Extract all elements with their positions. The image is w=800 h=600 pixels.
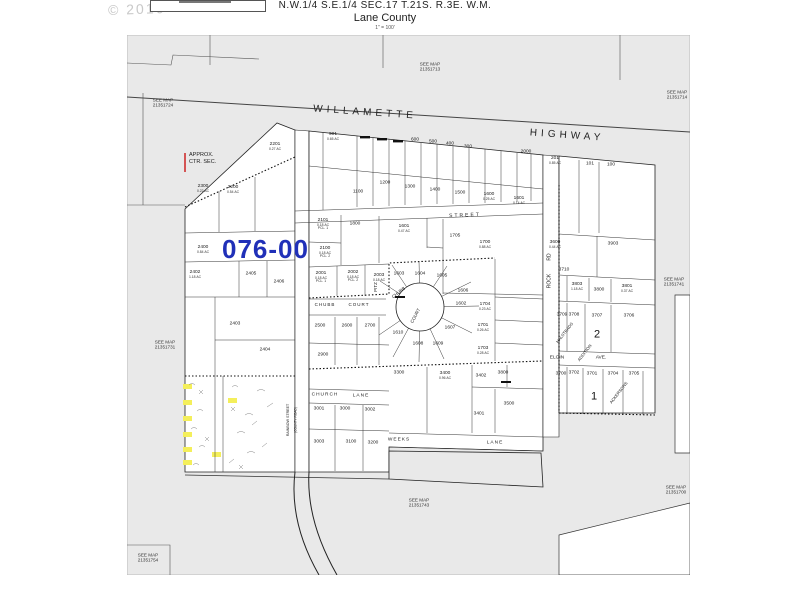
parcel-label: 17010.26 AC xyxy=(477,324,489,332)
see-map-ref: SEE MAP21351714 xyxy=(667,90,687,101)
parcel-label: 3700 xyxy=(556,373,567,378)
see-map-ref: SEE MAP21351724 xyxy=(153,98,173,109)
street-label: AVE. xyxy=(596,357,607,362)
parcel-label: 2600 xyxy=(342,325,353,330)
street-label: COURT xyxy=(410,308,421,324)
parcel-label: 1609 xyxy=(433,343,444,348)
parcel-label: 1300 xyxy=(405,186,416,191)
parcel-label: 23000.22 AC xyxy=(197,185,209,193)
street-label: RD xyxy=(548,253,553,260)
parcel-label: 1604 xyxy=(415,273,426,278)
parcel-label: 17030.28 AC xyxy=(477,347,489,355)
parcel-label: 3709 xyxy=(557,314,568,319)
parcel-label: 2405 xyxy=(246,273,257,278)
parcel-label: 2406 xyxy=(274,281,285,286)
district-code: 076-00 xyxy=(222,236,309,262)
parcel-label: 2404 xyxy=(260,349,271,354)
parcel-label: 34000.96 AC xyxy=(439,372,451,380)
parcel-label: 17000.88 AC xyxy=(479,241,491,249)
map-header: N.W.1/4 S.E.1/4 SEC.17 T.21S. R.3E. W.M.… xyxy=(0,0,770,31)
street-label: LANE xyxy=(487,442,504,447)
parcel-label: 500 xyxy=(429,141,437,146)
street-label: ADDITION xyxy=(577,344,593,362)
street-label: WILLAMETTE xyxy=(313,104,417,121)
parcel-label: 3710 xyxy=(559,269,570,274)
parcel-label: 3704 xyxy=(608,373,619,378)
parcel-label: 38010.37 AC xyxy=(621,285,633,293)
parcel-label: 1605 xyxy=(437,275,448,280)
parcel-label: 9010.65 AC xyxy=(327,133,339,141)
parcel-label: 3705 xyxy=(629,373,640,378)
parcel-label: 2010.85 AC xyxy=(549,157,561,165)
parcel-label: 3402 xyxy=(476,375,487,380)
parcel-label: 22000.54 AC xyxy=(227,186,239,194)
parcel-label: 3800 xyxy=(498,372,509,377)
see-map-ref: SEE MAP21351743 xyxy=(409,498,429,509)
street-label: (COUNTY ROAD) xyxy=(294,407,297,433)
street-label: CHUBB xyxy=(391,286,406,299)
street-label: CHUBB xyxy=(315,303,336,308)
parcel-label: 1610 xyxy=(393,332,404,337)
parcel-label: 16010.14 AC xyxy=(513,197,525,205)
parcel-label: 3200 xyxy=(368,442,379,447)
see-map-ref: SEE MAP21351754 xyxy=(138,553,158,564)
parcel-label: 1500 xyxy=(455,192,466,197)
parcel-label: 16000.25 AC xyxy=(483,193,495,201)
parcel-label: 16010.47 AC xyxy=(398,225,410,233)
see-map-ref: SEE MAP21351741 xyxy=(664,277,684,288)
parcel-label: 1200 xyxy=(380,182,391,187)
parcel-label: 1603 xyxy=(394,273,405,278)
street-label: STREET xyxy=(449,213,481,219)
parcel-label: 20030.18 AC xyxy=(373,274,385,282)
parcel-label: 3100 xyxy=(346,441,357,446)
parcel-label: 22010.27 AC xyxy=(269,143,281,151)
see-map-ref: SEE MAP21351731 xyxy=(155,340,175,351)
parcel-label: 1602 xyxy=(456,303,467,308)
parcel-label: 20010.18 ACPCL. 1 xyxy=(315,272,327,284)
street-label: WEEKS xyxy=(388,439,410,444)
parcel-label: 600 xyxy=(411,139,419,144)
parcel-label: 3800 xyxy=(594,289,605,294)
street-label: HALSTEADS xyxy=(556,322,575,344)
parcel-label: 3706 xyxy=(624,315,635,320)
parcel-label: 2000 xyxy=(521,151,532,156)
approx-center-note: APPROX. CTR. SEC. xyxy=(189,152,216,166)
parcel-label: 3701 xyxy=(587,373,598,378)
parcel-label: 38031.18 AC xyxy=(571,283,583,291)
street-label: ROCK xyxy=(548,274,553,288)
parcel-label: 1606 xyxy=(458,290,469,295)
parcel-label: 1607 xyxy=(445,327,456,332)
county-title: Lane County xyxy=(0,12,770,24)
parcel-label: 3003 xyxy=(314,441,325,446)
parcel-label: 3702 xyxy=(569,372,580,377)
street-label: LANE xyxy=(353,395,370,400)
parcel-label: 3500 xyxy=(504,403,515,408)
parcel-label: 20020.18 ACPCL. 2 xyxy=(347,271,359,283)
parcel-label: 1100 xyxy=(353,191,363,196)
assessor-map-page: © 2016 N.W.1/4 S.E.1/4 SEC.17 T.21S. R.3… xyxy=(0,0,800,600)
parcel-label: 1608 xyxy=(413,343,424,348)
see-map-ref: SEE MAP21351700 xyxy=(666,485,686,496)
block-number: 1 xyxy=(591,392,597,403)
parcel-label: 3708 xyxy=(569,314,580,319)
parcel-label: 17040.23 AC xyxy=(479,303,491,311)
parcel-label: 2500 xyxy=(315,325,326,330)
see-map-ref: SEE MAP21351713 xyxy=(420,62,440,73)
street-label: ACKERSONS xyxy=(609,381,629,404)
street-label: ELGIN xyxy=(550,357,564,362)
block-number: 2 xyxy=(594,330,600,341)
parcel-label: 3300 xyxy=(394,372,405,377)
street-label: PITZ xyxy=(374,282,379,292)
parcel-label: 36000.44 AC xyxy=(549,241,561,249)
parcel-label: 2900 xyxy=(318,354,329,359)
township-title: N.W.1/4 S.E.1/4 SEC.17 T.21S. R.3E. W.M. xyxy=(0,0,770,11)
parcel-label: 21000.18 ACPCL. 2 xyxy=(319,247,331,259)
parcel-label: 24000.84 AC xyxy=(197,246,209,254)
parcel-label: 3002 xyxy=(365,409,376,414)
parcel-label: 3903 xyxy=(608,243,619,248)
parcel-label: 2700 xyxy=(365,325,376,330)
parcel-label: 3000 xyxy=(340,408,351,413)
street-label: COURT xyxy=(349,303,370,308)
parcel-label: 1800 xyxy=(350,223,361,228)
parcel-label: 1705 xyxy=(450,235,461,240)
street-label: RAINBOW STREET xyxy=(287,404,291,436)
map-canvas: 076-00 APPROX. CTR. SEC. 22010.27 AC2300… xyxy=(127,35,690,575)
map-labels-layer: 076-00 APPROX. CTR. SEC. 22010.27 AC2300… xyxy=(127,35,690,575)
parcel-label: 1400 xyxy=(430,189,441,194)
parcel-label: 24021.18 AC xyxy=(189,271,201,279)
parcel-label: 21010.18 ACPCL. 1 xyxy=(317,219,329,231)
street-label: CHURCH xyxy=(312,394,339,399)
street-label: HIGHWAY xyxy=(529,128,604,143)
parcel-label: 300 xyxy=(464,146,472,151)
parcel-label: 3001 xyxy=(314,408,325,413)
parcel-label: 400 xyxy=(446,143,454,148)
parcel-label: 2403 xyxy=(230,323,241,328)
parcel-label: 3401 xyxy=(474,413,485,418)
scale-note: 1" = 100' xyxy=(0,25,770,31)
parcel-label: 101 xyxy=(586,163,594,168)
parcel-label: 100 xyxy=(607,164,615,169)
parcel-label: 3707 xyxy=(592,315,603,320)
